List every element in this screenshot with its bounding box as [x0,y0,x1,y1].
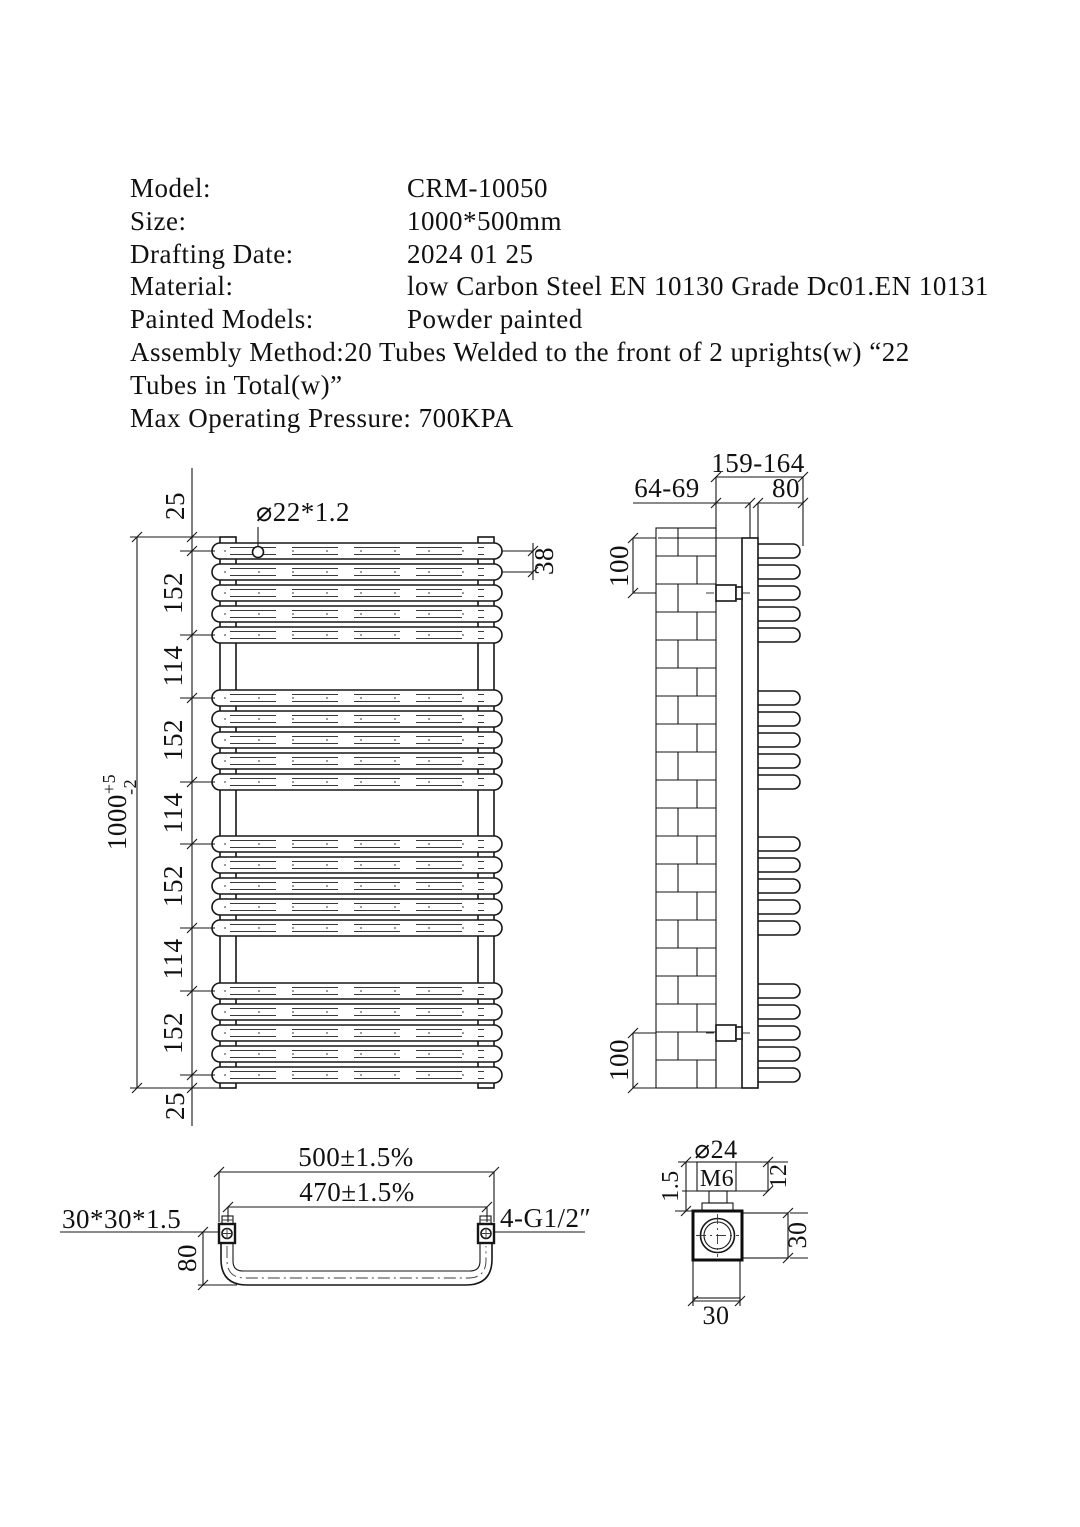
bottom-view: 500±1.5% 470±1.5% 30*30*1.5 4-G1/2″ 80 [60,1142,591,1290]
dim-chain-152-4: 152 [158,1012,188,1054]
bottom-tube-inner [233,1243,480,1271]
dim-wall-clearance: 64-69 [634,473,700,503]
detail-bottom-block [693,1260,740,1298]
front-view: 25 152 114 152 114 152 114 152 25 1000+5… [99,468,559,1126]
dim-tube-depth: 80 [772,473,800,503]
dim-bracket-top: 100 [604,545,634,587]
dim-chain-25-top: 25 [160,492,190,520]
dim-overall-height: 1000+5-2 [99,774,140,850]
dim-chain-25-bottom: 25 [160,1092,190,1120]
dim-upright-spec: 30*30*1.5 [62,1204,181,1234]
detail-stem [709,1191,727,1203]
dim-block-width: 30 [703,1301,730,1330]
technical-drawing: 25 152 114 152 114 152 114 152 25 1000+5… [0,0,1080,1527]
dim-chain-152-3: 152 [158,865,188,907]
bottom-tube-centerline [227,1246,486,1278]
dim-chain-152-2: 152 [158,719,188,761]
dim-thickness: 1.5 [658,1170,684,1202]
tube-spec-leader-circle [253,547,264,558]
front-tubes [212,543,502,1083]
dim-thread: M6 [700,1166,734,1192]
dim-chain-114-3: 114 [158,939,188,980]
dim-bottom-depth: 80 [172,1244,202,1272]
bottom-tube-outer [221,1243,492,1285]
dim-chain-114-1: 114 [158,646,188,687]
side-tube-ends [758,544,800,1082]
side-view: 159-164 64-69 80 100 100 [604,448,808,1093]
detail-view: ⌀24 M6 1.5 12 30 30 [658,1135,812,1330]
dim-cap-height: 12 [766,1164,792,1189]
dim-overall-width: 500±1.5% [298,1142,414,1172]
dim-centers-width: 470±1.5% [299,1177,415,1207]
drawing-sheet: Model: CRM-10050 Size: 1000*500mm Drafti… [0,0,1080,1527]
dim-tube-spec: ⌀22*1.2 [256,497,350,527]
dim-chain-114-2: 114 [158,793,188,834]
dim-block-height: 30 [783,1222,812,1249]
side-upright [742,538,758,1088]
dim-connection-spec: 4-G1/2″ [500,1203,591,1233]
dim-tube-pitch: 38 [529,547,559,575]
dim-cap-diameter: ⌀24 [694,1135,737,1164]
dim-chain-152-1: 152 [158,572,188,614]
dim-bracket-bottom: 100 [604,1039,634,1081]
detail-side-block [742,1213,788,1258]
wall-hatch [656,528,716,1088]
